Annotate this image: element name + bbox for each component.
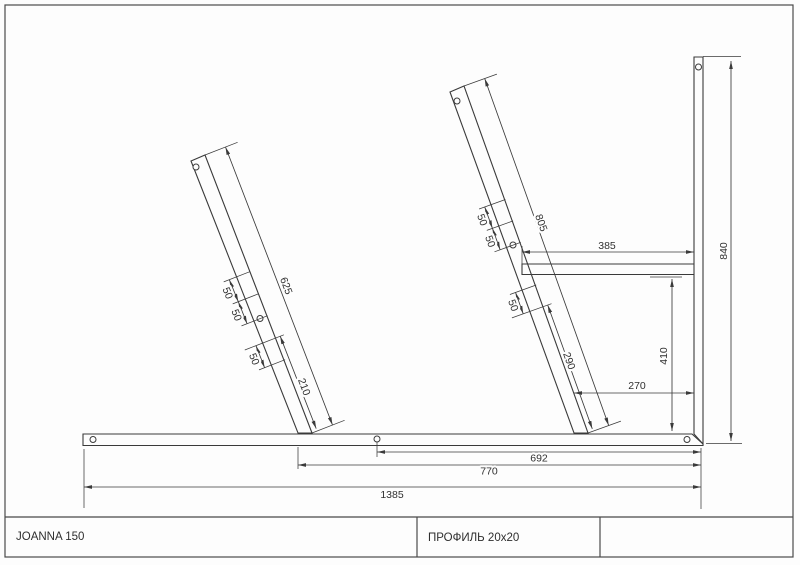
dim-label-805: 805 xyxy=(532,213,549,234)
seat-rail xyxy=(522,264,694,275)
dim-label-50-left-upper: 50 xyxy=(220,286,235,301)
drawing-sheet: 625 210 50 50 50 805 290 50 50 50 385 41… xyxy=(0,0,800,565)
dim-label-50-left-lower: 50 xyxy=(246,352,261,367)
dim-label-50-right-mid: 50 xyxy=(482,234,497,249)
hole-backrest-top xyxy=(696,64,702,70)
dim-label-840: 840 xyxy=(718,242,730,260)
dimension-labels: 625 210 50 50 50 805 290 50 50 50 385 41… xyxy=(220,212,730,501)
title-block: JOANNA 150 ПРОФИЛЬ 20x20 xyxy=(5,517,793,557)
hole-base-left xyxy=(90,437,96,443)
backrest-bar xyxy=(694,57,703,444)
model-name: JOANNA 150 xyxy=(16,531,84,543)
hole-base-middle xyxy=(374,436,380,442)
dim-label-692: 692 xyxy=(530,453,548,465)
dim-label-270: 270 xyxy=(628,380,646,392)
technical-drawing: 625 210 50 50 50 805 290 50 50 50 385 41… xyxy=(0,0,800,565)
dim-label-50-right-lower: 50 xyxy=(505,298,520,313)
dim-label-50-right-upper: 50 xyxy=(474,212,489,227)
dim-label-625: 625 xyxy=(277,276,295,297)
dim-label-1385: 1385 xyxy=(380,489,404,501)
dim-label-410: 410 xyxy=(658,347,670,365)
drawing-border xyxy=(5,5,793,557)
dim-label-770: 770 xyxy=(480,466,498,478)
profile-spec: ПРОФИЛЬ 20x20 xyxy=(428,532,519,544)
left-leg-bar xyxy=(191,155,312,433)
dim-label-210: 210 xyxy=(295,377,313,398)
base-bar xyxy=(83,434,703,446)
dim-label-385: 385 xyxy=(598,240,616,252)
extension-lines xyxy=(84,57,742,510)
hole-base-right xyxy=(684,437,690,443)
right-leg-bar xyxy=(450,86,588,433)
dim-label-290: 290 xyxy=(560,351,577,372)
hole-left-leg-top xyxy=(193,164,199,170)
hole-right-leg-top xyxy=(454,98,460,104)
dim-label-50-left-mid: 50 xyxy=(229,308,244,323)
